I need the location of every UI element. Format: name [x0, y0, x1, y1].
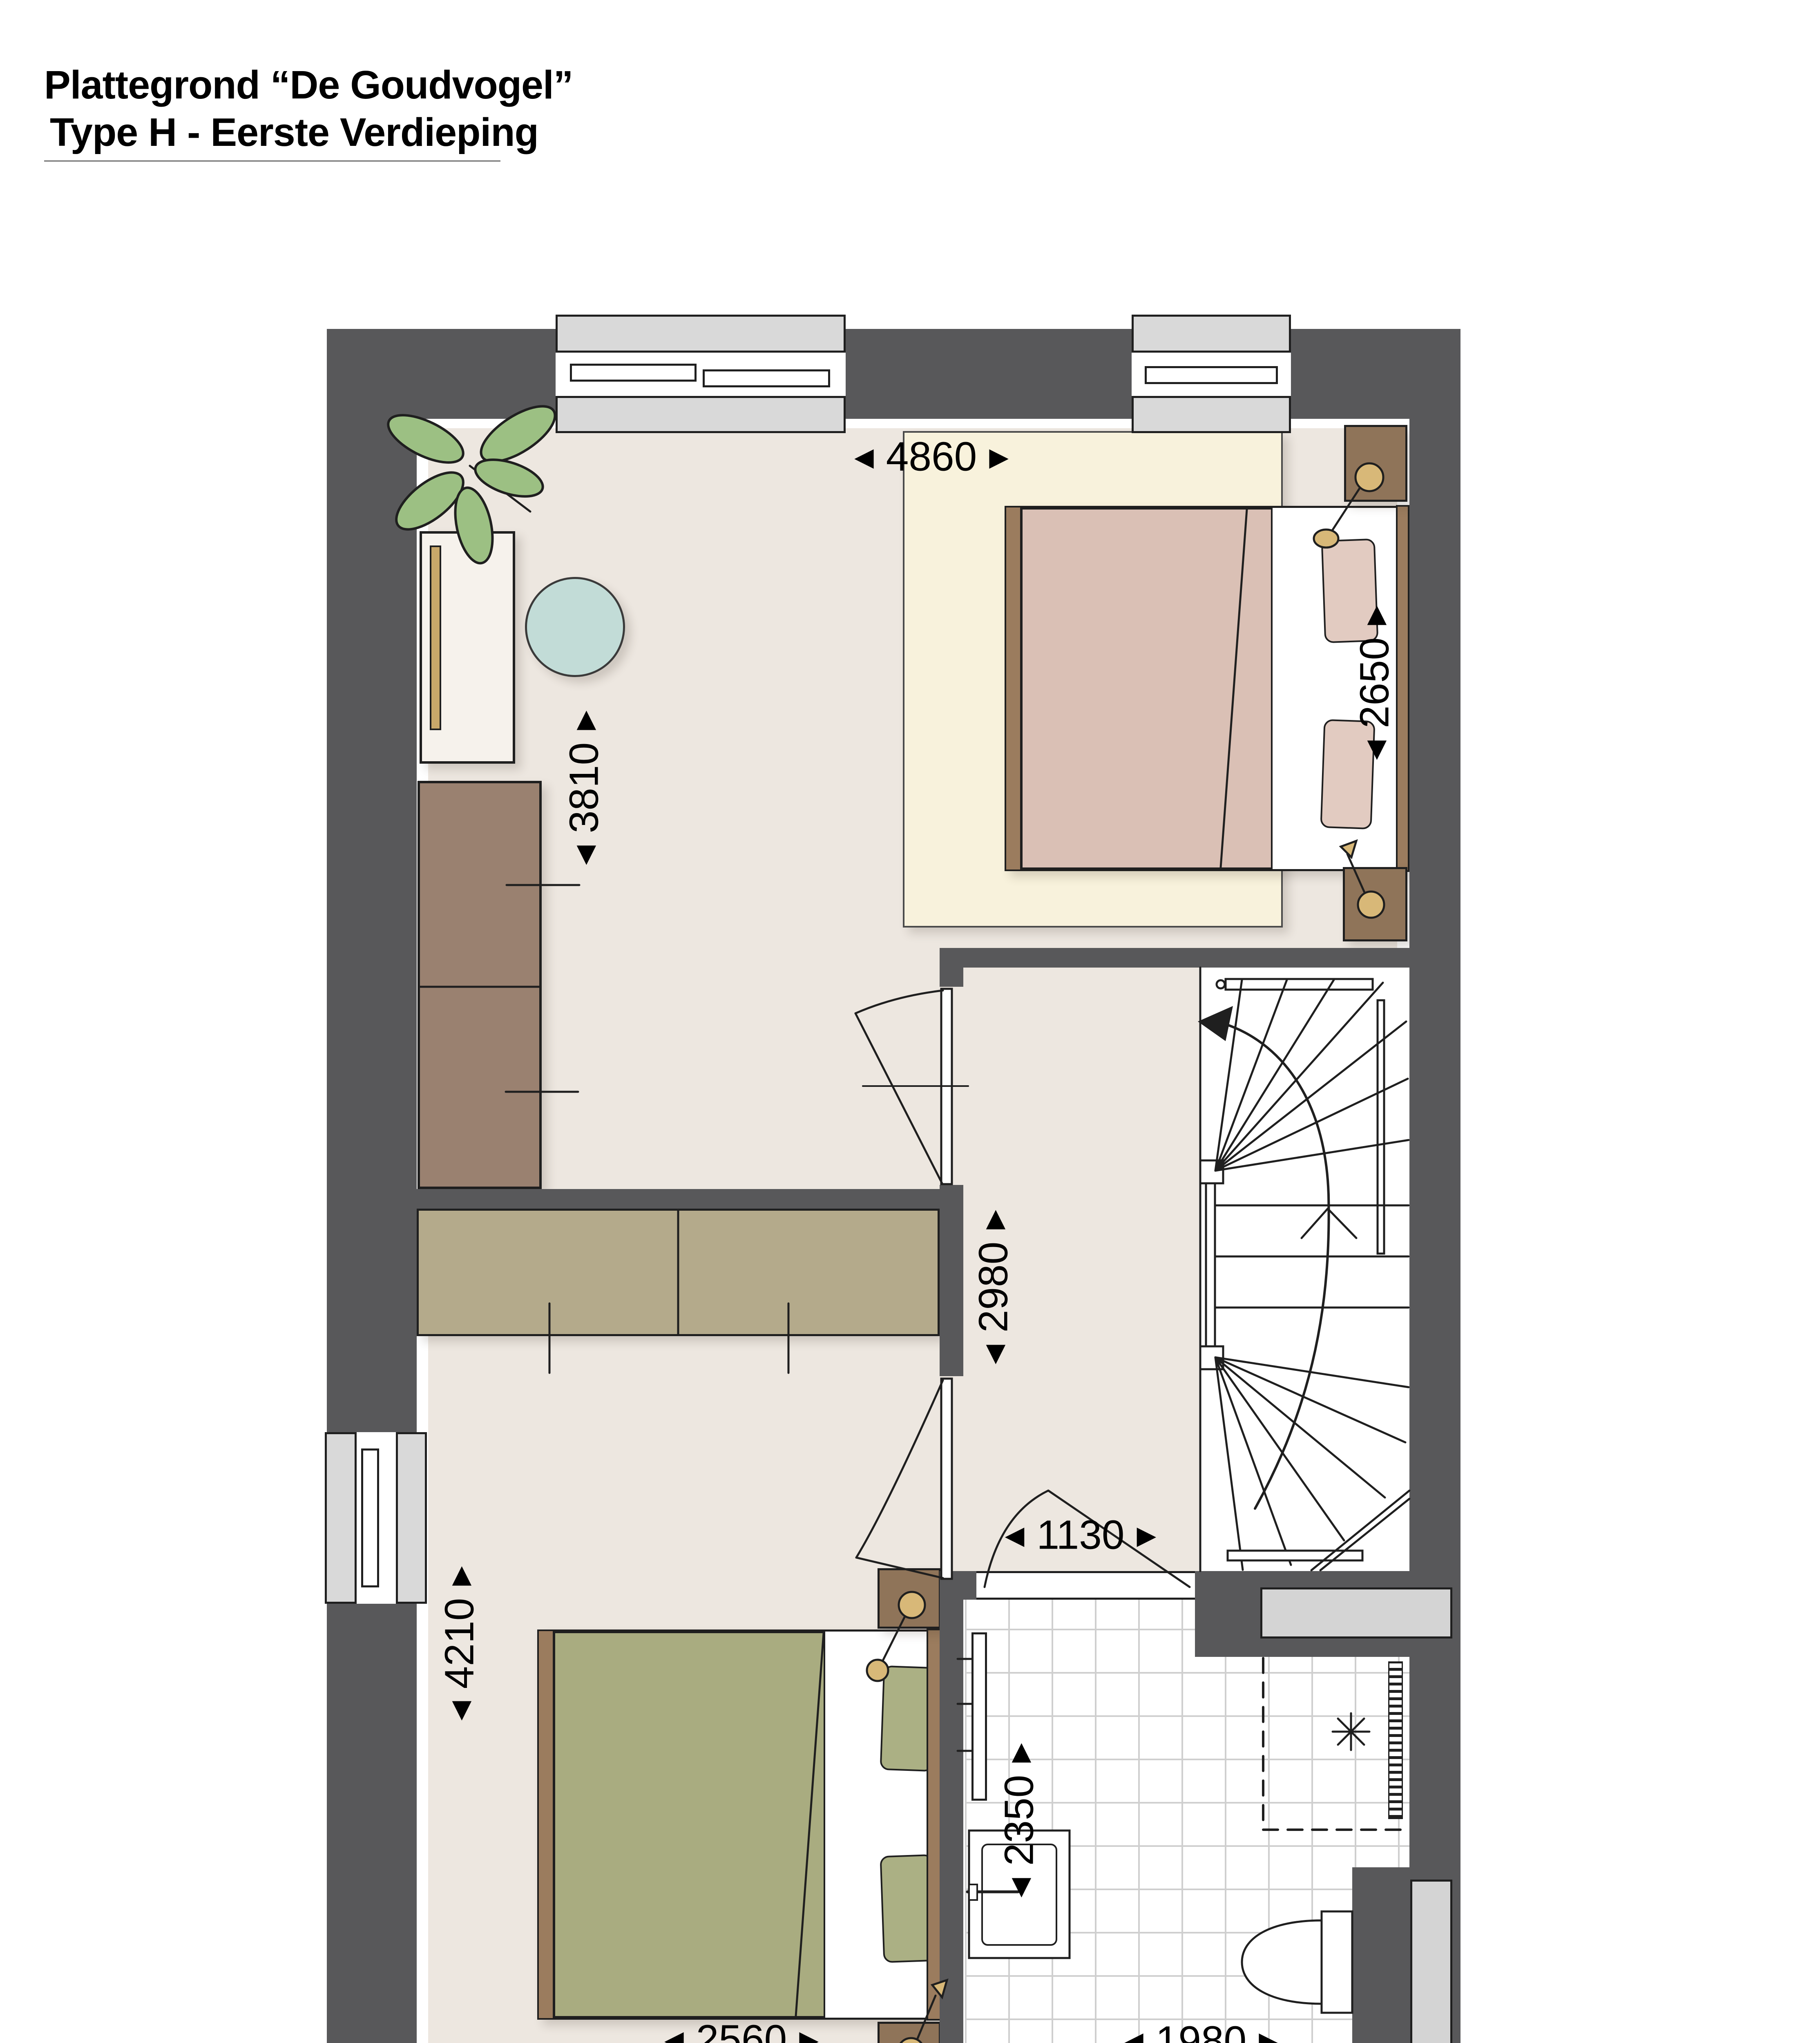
dimension-value: 1980 [1156, 2018, 1246, 2043]
dim-arrow-right-icon: ▶ [799, 2025, 819, 2043]
duct-shaft-top [1260, 1587, 1452, 1638]
dim-arrow-right-icon: ▶ [445, 1566, 475, 1586]
wall-toilet-stub [1352, 1867, 1409, 2043]
dim-arrow-right-icon: ▶ [1137, 1520, 1157, 1550]
title-underline [44, 160, 500, 162]
dimension-bedroom1-depth: ◀ 3810 ▶ [561, 711, 608, 865]
nightstand [1343, 867, 1407, 941]
dimension-value: 2560 [696, 2016, 787, 2043]
dim-arrow-left-icon: ◀ [854, 442, 874, 472]
dimension-landing-door: ◀ 1130 ▶ [1005, 1512, 1156, 1559]
dimension-bedroom2-width: ◀ 2560 ▶ [664, 2016, 819, 2043]
dimension-bathroom-depth: ◀ 2350 ▶ [996, 1743, 1043, 1898]
dim-arrow-left-icon: ◀ [1005, 1520, 1025, 1550]
wardrobe-bedroom1 [418, 781, 542, 1189]
page-title: Plattegrond “De Goudvogel” [44, 62, 573, 108]
dim-arrow-right-icon: ▶ [979, 1210, 1009, 1229]
wall-exterior-right [1409, 329, 1460, 2043]
dim-arrow-left-icon: ◀ [445, 1701, 475, 1721]
dim-arrow-left-icon: ◀ [569, 845, 599, 865]
wall-bedroom1-landing [963, 948, 1409, 968]
dim-arrow-left-icon: ◀ [1124, 2026, 1143, 2043]
wall-partition-p1-bottom [940, 1581, 963, 2043]
wall-partition-p1-top [940, 948, 963, 987]
wall-bathroom-top-left [940, 1571, 976, 1600]
dimension-value: 2980 [970, 1242, 1017, 1332]
dimension-value: 4210 [436, 1598, 483, 1689]
window-sash [361, 1448, 379, 1587]
dim-arrow-right-icon: ▶ [989, 442, 1009, 472]
dim-arrow-right-icon: ▶ [1259, 2026, 1278, 2043]
dimension-bedroom1-bed-wall: ◀ 2650 ▶ [1351, 606, 1398, 760]
bathroom-door-threshold [976, 1571, 1195, 1600]
nightstand [878, 1568, 941, 1629]
dimension-landing-depth: ◀ 2980 ▶ [970, 1210, 1017, 1364]
bed1-duvet [1021, 508, 1273, 869]
window-sash [570, 364, 697, 382]
dim-arrow-right-icon: ▶ [569, 711, 599, 730]
duct-shaft-right [1410, 1880, 1452, 2043]
dimension-value: 2350 [996, 1775, 1043, 1866]
dim-arrow-left-icon: ◀ [979, 1345, 1009, 1364]
floor-door1-opening [940, 987, 963, 1185]
dim-arrow-right-icon: ▶ [1005, 1743, 1034, 1763]
wardrobe-bedroom2 [417, 1209, 940, 1336]
wall-exterior-left [327, 329, 417, 2043]
window-sash [1145, 366, 1278, 384]
dimension-value: 1130 [1036, 1512, 1124, 1559]
dimension-bedroom1-width: ◀ 4860 ▶ [854, 434, 1009, 481]
round-rug [525, 577, 625, 677]
radiator [971, 1632, 987, 1801]
dim-arrow-left-icon: ◀ [664, 2025, 684, 2043]
bed1-footboard [1005, 506, 1022, 871]
bed2-footboard [537, 1629, 554, 2020]
nightstand [878, 2022, 941, 2043]
dimension-value: 4860 [886, 434, 977, 481]
dim-arrow-left-icon: ◀ [1005, 1878, 1034, 1898]
floor-door2-opening [940, 1376, 963, 1581]
dimension-value: 3810 [561, 742, 608, 833]
window-sash [703, 369, 830, 387]
wall-bedroom1-bedroom2 [417, 1189, 940, 1209]
page-subtitle: Type H - Eerste Verdieping [50, 110, 538, 155]
nightstand [1344, 425, 1407, 502]
sideboard-shelf [430, 545, 441, 730]
dimension-value: 2650 [1351, 637, 1398, 728]
dim-arrow-left-icon: ◀ [1360, 740, 1390, 760]
shower-drain-channel [1388, 1661, 1403, 1819]
dim-arrow-right-icon: ▶ [1360, 606, 1390, 625]
stairwell-area [1199, 966, 1409, 1571]
dimension-bathroom-width: ◀ 1980 ▶ [1124, 2018, 1278, 2043]
wall-partition-p1-mid [940, 1185, 963, 1376]
bed2-headboard [927, 1629, 941, 2021]
dimension-bedroom2-depth: ◀ 4210 ▶ [436, 1566, 483, 1721]
bed2-duvet [554, 1632, 825, 2018]
